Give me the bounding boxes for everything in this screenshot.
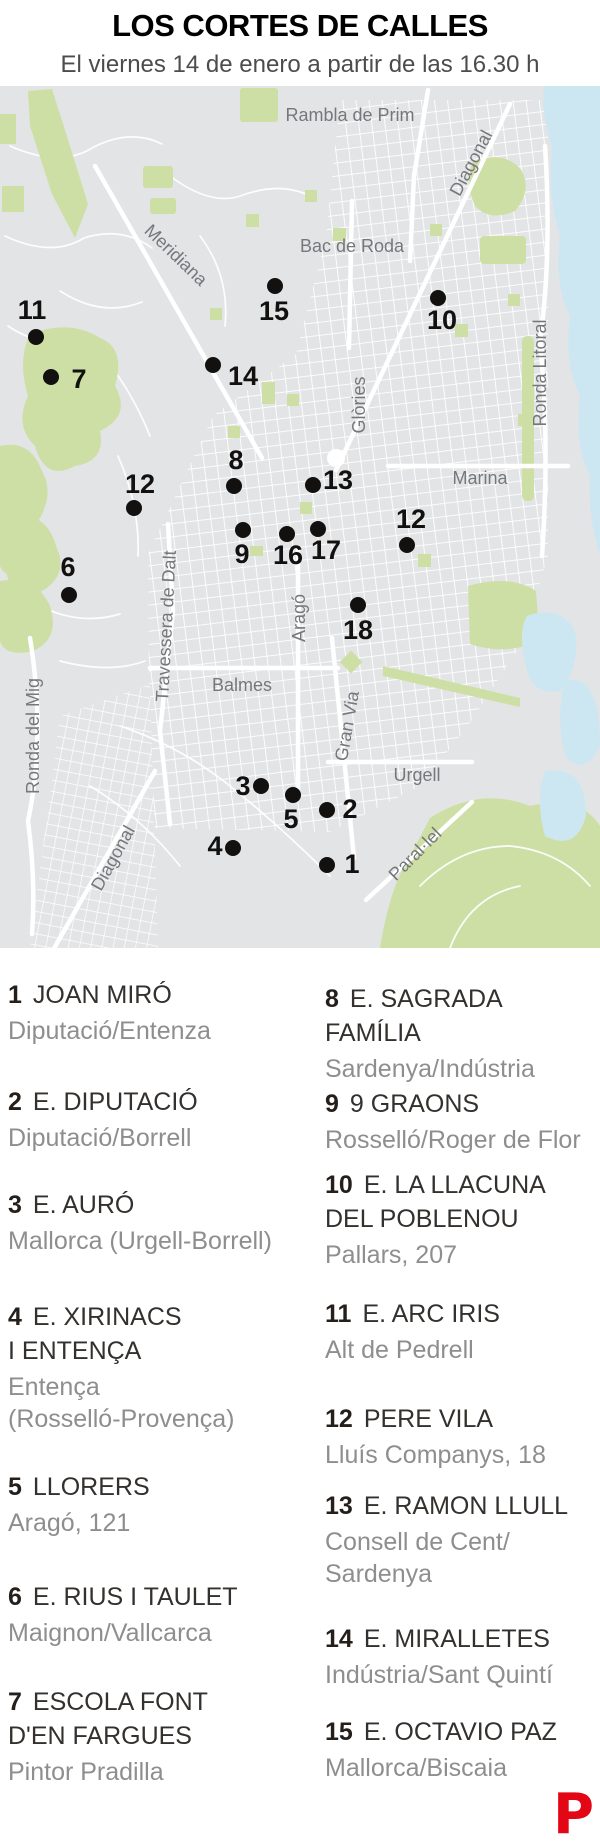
legend-entry-number: 3 bbox=[8, 1191, 22, 1219]
legend-entry-location: Pallars, 207 bbox=[325, 1239, 597, 1271]
legend-entry-6: 6E. RIUS I TAULETMaignon/Vallcarca bbox=[8, 1580, 320, 1649]
legend-entry-number: 9 bbox=[325, 1090, 339, 1118]
legend-entry-location: Diputació/Borrell bbox=[8, 1122, 320, 1154]
legend-entry-8: 8E. SAGRADA FAMÍLIASardenya/Indústria bbox=[325, 982, 597, 1085]
legend-entry-location: Mallorca/Biscaia bbox=[325, 1752, 597, 1784]
legend-entry-name: E. ARC IRIS bbox=[362, 1300, 500, 1328]
legend-entry-title: 99 GRAONS bbox=[325, 1087, 597, 1121]
legend-entry-name: E. DIPUTACIÓ bbox=[33, 1088, 198, 1116]
legend-entry-title: 3E. AURÓ bbox=[8, 1188, 320, 1222]
legend-entry-number: 2 bbox=[8, 1088, 22, 1116]
legend-entry-name: E. AURÓ bbox=[33, 1191, 134, 1219]
legend-entry-7: 7ESCOLA FONT D'EN FARGUESPintor Pradilla bbox=[8, 1685, 320, 1788]
legend-entry-number: 1 bbox=[8, 981, 22, 1009]
legend-entry-title: 15E. OCTAVIO PAZ bbox=[325, 1715, 597, 1749]
legend-entry-12: 12PERE VILALluís Companys, 18 bbox=[325, 1402, 597, 1471]
legend-entry-title: 5LLORERS bbox=[8, 1470, 320, 1504]
legend-entry-4: 4E. XIRINACS I ENTENÇAEntença (Rosselló-… bbox=[8, 1300, 320, 1435]
legend-entry-location: Mallorca (Urgell-Borrell) bbox=[8, 1225, 320, 1257]
legend-entry-title: 12PERE VILA bbox=[325, 1402, 597, 1436]
legend-entry-name: LLORERS bbox=[33, 1473, 150, 1501]
legend: 1JOAN MIRÓDiputació/Entenza2E. DIPUTACIÓ… bbox=[0, 0, 600, 1838]
legend-entry-9: 99 GRAONSRosselló/Roger de Flor bbox=[325, 1087, 597, 1156]
legend-entry-number: 4 bbox=[8, 1303, 22, 1331]
legend-entry-location: Maignon/Vallcarca bbox=[8, 1617, 320, 1649]
legend-entry-number: 5 bbox=[8, 1473, 22, 1501]
legend-entry-13: 13E. RAMON LLULLConsell de Cent/ Sardeny… bbox=[325, 1489, 597, 1590]
legend-entry-title: 2E. DIPUTACIÓ bbox=[8, 1085, 320, 1119]
legend-entry-title: 1JOAN MIRÓ bbox=[8, 978, 320, 1012]
legend-entry-14: 14E. MIRALLETESIndústria/Sant Quintí bbox=[325, 1622, 597, 1691]
legend-entry-location: Consell de Cent/ Sardenya bbox=[325, 1526, 597, 1590]
legend-entry-title: 7ESCOLA FONT D'EN FARGUES bbox=[8, 1685, 320, 1753]
legend-entry-number: 8 bbox=[325, 985, 339, 1013]
legend-entry-location: Diputació/Entenza bbox=[8, 1015, 320, 1047]
legend-entry-number: 13 bbox=[325, 1492, 353, 1520]
legend-entry-3: 3E. AURÓMallorca (Urgell-Borrell) bbox=[8, 1188, 320, 1257]
legend-entry-number: 11 bbox=[325, 1300, 351, 1328]
legend-entry-number: 15 bbox=[325, 1718, 353, 1746]
legend-entry-name: PERE VILA bbox=[364, 1405, 493, 1433]
legend-entry-location: Rosselló/Roger de Flor bbox=[325, 1124, 597, 1156]
legend-entry-5: 5LLORERSAragó, 121 bbox=[8, 1470, 320, 1539]
legend-entry-number: 7 bbox=[8, 1688, 22, 1716]
legend-entry-location: Sardenya/Indústria bbox=[325, 1053, 597, 1085]
legend-entry-location: Pintor Pradilla bbox=[8, 1756, 320, 1788]
legend-entry-number: 6 bbox=[8, 1583, 22, 1611]
legend-entry-name: ESCOLA FONT D'EN FARGUES bbox=[8, 1688, 208, 1750]
legend-entry-location: Entença (Rosselló-Provença) bbox=[8, 1371, 320, 1435]
legend-entry-name: E. XIRINACS I ENTENÇA bbox=[8, 1303, 182, 1365]
legend-entry-location: Alt de Pedrell bbox=[325, 1334, 597, 1366]
legend-entry-name: 9 GRAONS bbox=[350, 1090, 479, 1118]
legend-entry-name: E. LA LLACUNA DEL POBLENOU bbox=[325, 1171, 546, 1233]
legend-entry-2: 2E. DIPUTACIÓDiputació/Borrell bbox=[8, 1085, 320, 1154]
legend-entry-title: 14E. MIRALLETES bbox=[325, 1622, 597, 1656]
legend-entry-name: E. RAMON LLULL bbox=[364, 1492, 568, 1520]
legend-entry-location: Lluís Companys, 18 bbox=[325, 1439, 597, 1471]
legend-entry-title: 10E. LA LLACUNA DEL POBLENOU bbox=[325, 1168, 597, 1236]
legend-entry-name: E. RIUS I TAULET bbox=[33, 1583, 238, 1611]
legend-entry-name: E. OCTAVIO PAZ bbox=[364, 1718, 557, 1746]
legend-entry-11: 11E. ARC IRISAlt de Pedrell bbox=[325, 1297, 597, 1366]
legend-entry-title: 13E. RAMON LLULL bbox=[325, 1489, 597, 1523]
newspaper-logo: P bbox=[553, 1790, 594, 1840]
legend-entry-title: 11E. ARC IRIS bbox=[325, 1297, 597, 1331]
legend-entry-title: 8E. SAGRADA FAMÍLIA bbox=[325, 982, 597, 1050]
legend-entry-number: 14 bbox=[325, 1625, 353, 1653]
legend-entry-15: 15E. OCTAVIO PAZMallorca/Biscaia bbox=[325, 1715, 597, 1784]
legend-entry-location: Aragó, 121 bbox=[8, 1507, 320, 1539]
legend-entry-title: 4E. XIRINACS I ENTENÇA bbox=[8, 1300, 320, 1368]
legend-entry-number: 10 bbox=[325, 1171, 353, 1199]
legend-entry-name: E. SAGRADA FAMÍLIA bbox=[325, 985, 501, 1047]
legend-entry-1: 1JOAN MIRÓDiputació/Entenza bbox=[8, 978, 320, 1047]
legend-entry-title: 6E. RIUS I TAULET bbox=[8, 1580, 320, 1614]
legend-entry-number: 12 bbox=[325, 1405, 353, 1433]
legend-entry-location: Indústria/Sant Quintí bbox=[325, 1659, 597, 1691]
legend-entry-10: 10E. LA LLACUNA DEL POBLENOUPallars, 207 bbox=[325, 1168, 597, 1271]
legend-entry-name: JOAN MIRÓ bbox=[33, 981, 172, 1009]
legend-entry-name: E. MIRALLETES bbox=[364, 1625, 550, 1653]
